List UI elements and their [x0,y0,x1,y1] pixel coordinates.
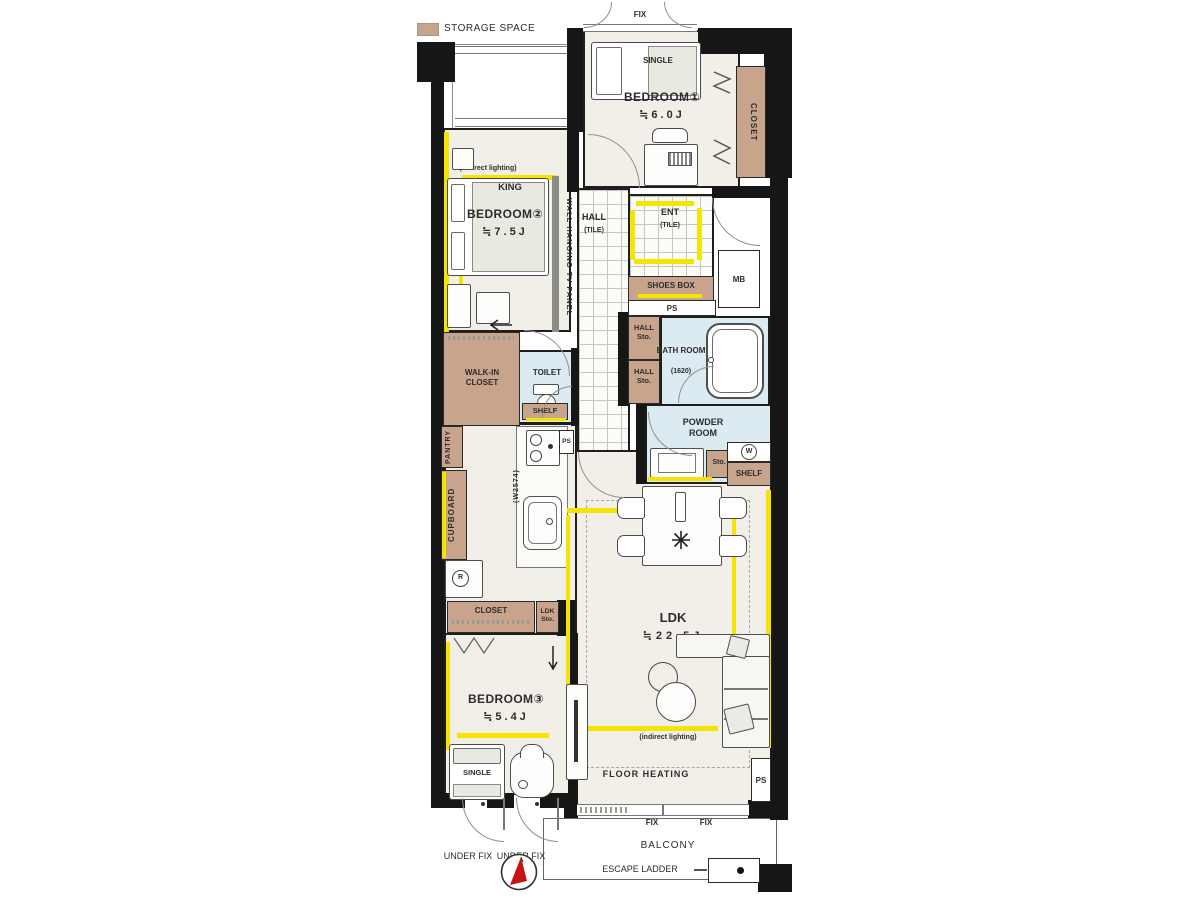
powder-shelf-label: SHELF [729,469,769,479]
cupboard-label: CUPBOARD [447,474,462,556]
bedroom3-bed-pillow [453,748,501,764]
bedroom2-nightstand [452,148,474,170]
wall-ldk-window-left [564,800,578,818]
sofa-chaise [676,634,770,658]
ent-light-right [697,208,702,260]
ldk-indirect-label: (indirect lighting) [608,734,728,742]
fix-bottom-left-label: FIX [622,818,682,828]
bathroom-name: BATH ROOM [656,346,706,356]
bedroom3-bed-blanket [453,784,501,797]
ldk-name: LDK [613,610,733,626]
pantry-label: PANTRY [445,428,459,466]
north-compass-icon [499,852,539,892]
bedroom1-bed-pillow [596,47,622,95]
refrigerator-mark: R [452,570,469,587]
stove-burner [530,434,542,446]
wall-top-left-block [417,42,455,82]
bedroom1-chair [652,128,688,143]
ldk-window-divider [662,804,664,816]
bedroom3-light-left [446,642,450,750]
bedroom1-area: ≒6.0J [592,109,732,123]
bedroom1-bed-label: SINGLE [620,56,696,66]
dining-chair [719,535,747,557]
bedroom1-desk-monitor [668,152,692,166]
wall-right-column [770,174,788,820]
bedroom2-bed-label: KING [470,182,550,194]
bedroom1-closet-label: CLOSET [742,86,758,158]
meter-box: MB [718,250,760,308]
sofa-seam [724,688,768,690]
ent-tile-label: (TILE) [640,222,700,230]
bedroom2-bench [447,284,471,328]
bedroom3-bed-label: SINGLE [451,769,503,778]
bedroom3-closet-label: CLOSET [452,606,530,616]
hall-sto-upper-label: HALL Sto. [630,324,658,341]
dining-chair [617,535,645,557]
walk-in-closet-label: WALK-IN CLOSET [448,368,516,388]
ps-entrance: PS [628,300,716,316]
bedroom3-name: BEDROOM③ [436,692,576,707]
door-arc-front [712,198,760,246]
ldk-window-screen [580,807,628,813]
shoes-box-label: SHOES BOX [633,281,709,291]
alcove-window-top [455,46,567,54]
bedroom2-tv-panel-label: WALL HANGING TV PANEL [559,176,573,338]
wall-powder-left [636,402,646,484]
wall-toilet-right [571,348,579,426]
bathtub-inner [712,329,758,393]
fix-window-top-label: FIX [610,10,670,20]
ps-kitchen: PS [559,430,574,454]
walk-in-closet-hatch [448,336,514,340]
ent-light-bottom [634,259,694,264]
ent-light-left [630,210,635,260]
bedroom3-light-mid [457,733,549,738]
ps-kitchen-label: PS [562,438,571,445]
wall-bedroom1-left [567,28,583,132]
tv-panel-wall [552,176,559,332]
ldk-sto-label: LDK Sto. [537,608,558,624]
terrace-door-blade [503,798,505,830]
fix-bottom-right-label: FIX [676,818,736,828]
bedroom3-chair-back [520,744,544,758]
down-arrow-icon [548,646,558,672]
dining-chair [617,497,645,519]
bedroom1-bed-blanket [648,46,697,96]
bathtub-drain [708,357,714,363]
ldk-light-bottom [578,726,718,731]
hall-sto-lower-label: HALL Sto. [630,368,658,385]
washer-mark: W [741,444,757,460]
plant-icon [671,530,691,550]
powder-light [648,477,712,481]
hanger-zigzag-icon [712,138,734,170]
hanger-zigzag-icon [712,70,734,98]
kitchen-faucet [546,518,553,525]
bedroom3-chair [510,752,554,798]
floor-heating-label: FLOOR HEATING [576,769,716,780]
escape-ladder-tie [694,869,707,871]
alcove-window-bottom [455,118,567,127]
wall-right-top-chunk [764,50,792,178]
dining-table-vase [675,492,686,522]
terrace-door-pivot [535,802,539,806]
ent-label: ENT [640,207,700,218]
terrace-door-blade [557,798,559,830]
bedroom3-area: ≒5.4J [436,711,576,725]
dining-chair [719,497,747,519]
balcony-label: BALCONY [608,840,728,853]
toilet-shelf-light [526,418,566,421]
walkin-direction-arrow [486,318,514,332]
bedroom3-chair-detail [518,780,528,789]
bedroom3-closet-hatch [452,620,530,624]
wall-bedroom1-entrance [712,186,772,198]
storage-legend-swatch [417,23,439,36]
ps-ldk: PS [751,758,771,802]
escape-ladder-label: ESCAPE LADDER [580,864,700,875]
escape-ladder-dot [737,867,744,874]
side-table-large [656,682,696,722]
stove-knob [548,444,553,449]
wall-ldk-window-right [748,800,772,818]
bedroom1-name: BEDROOM① [592,90,732,105]
cupboard-light [442,472,446,558]
wall-balcony-corner [758,864,792,892]
stove-burner [530,450,542,462]
ent-light-top [636,201,694,206]
powder-vanity-basin [658,453,696,473]
tv-screen [574,700,578,762]
escape-ladder-hatch [708,858,760,883]
terrace-door-pivot [481,802,485,806]
floor-plan: STORAGE SPACE FIX SHOES BOX PS MB HALL (… [0,0,1200,900]
bifold-door-icon [452,636,496,656]
shoes-box-light [638,294,702,298]
